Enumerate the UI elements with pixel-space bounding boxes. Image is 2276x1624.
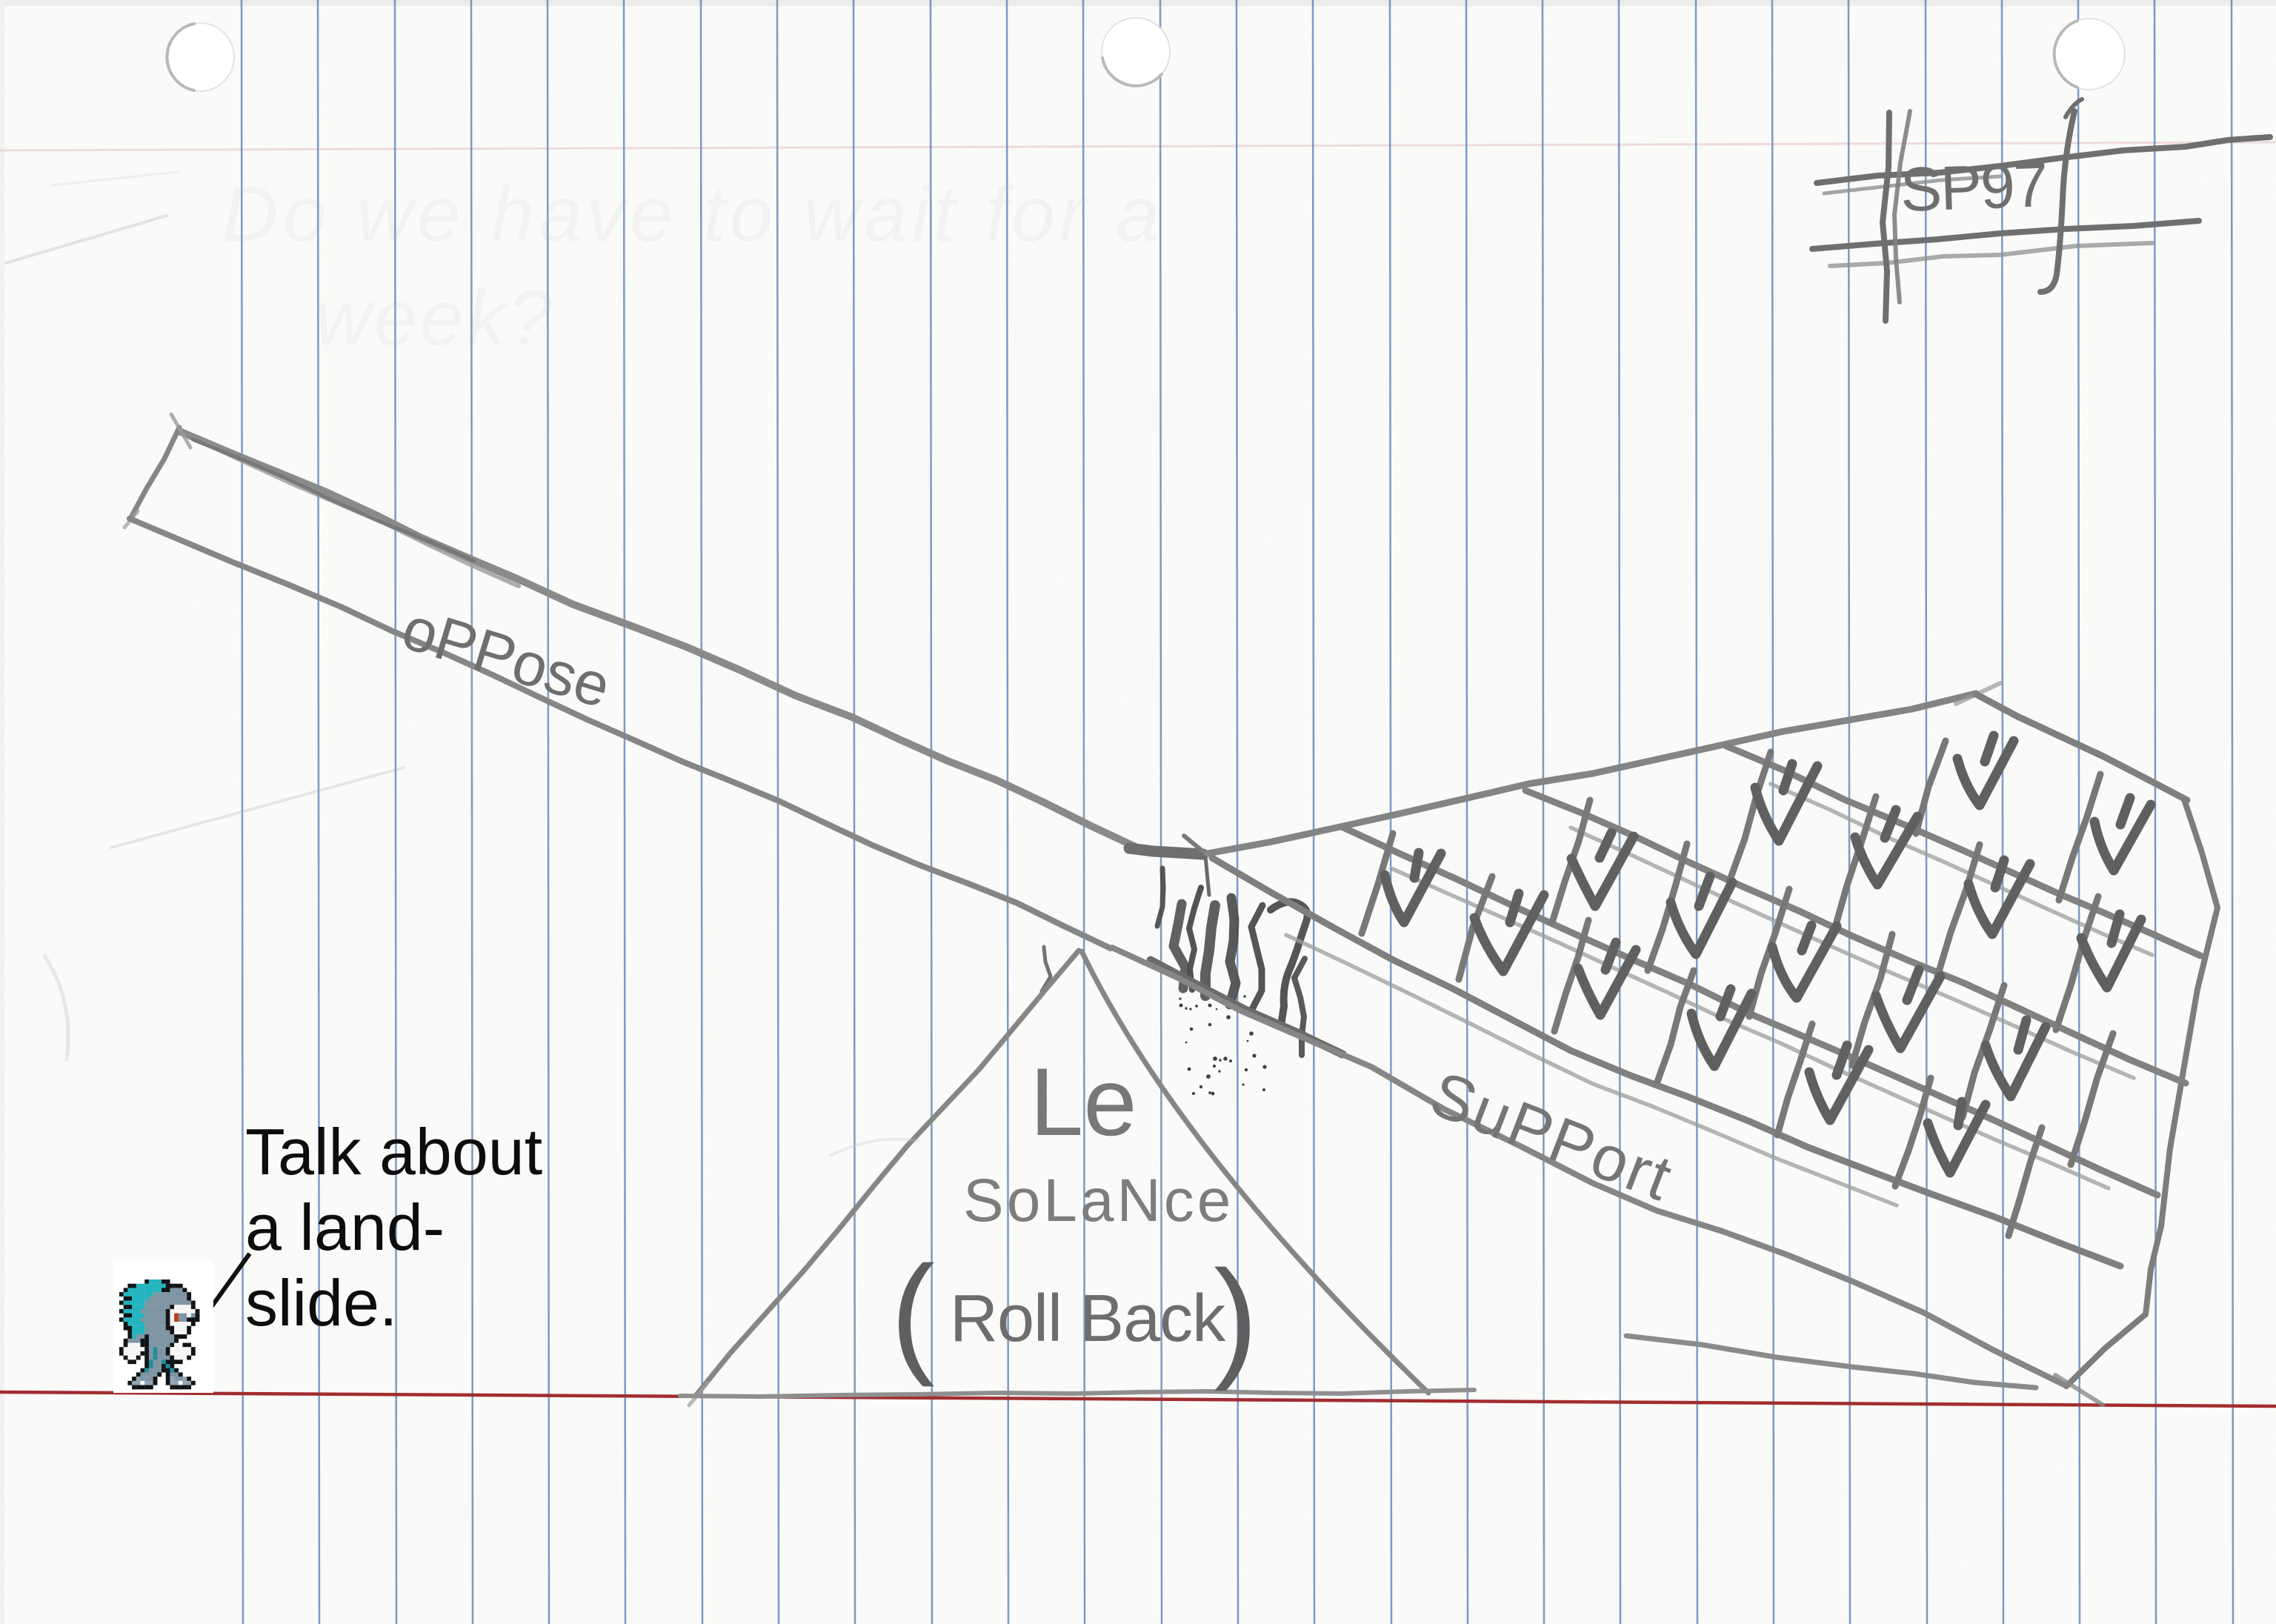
svg-text:a land-: a land- [245, 1191, 445, 1264]
svg-text:week?: week? [315, 275, 555, 362]
svg-text:SoLaNce: SoLaNce [963, 1167, 1234, 1234]
svg-text:): ) [1214, 1243, 1258, 1392]
svg-text:Do we have to wait for a: Do we have to wait for a [222, 171, 1163, 258]
svg-text:Le: Le [1030, 1048, 1137, 1156]
svg-text:SP97: SP97 [1899, 150, 2048, 224]
svg-text:Talk about: Talk about [245, 1115, 542, 1188]
svg-text:Roll Back: Roll Back [950, 1282, 1226, 1356]
svg-text:(: ( [891, 1239, 935, 1388]
svg-text:slide.: slide. [245, 1266, 397, 1340]
